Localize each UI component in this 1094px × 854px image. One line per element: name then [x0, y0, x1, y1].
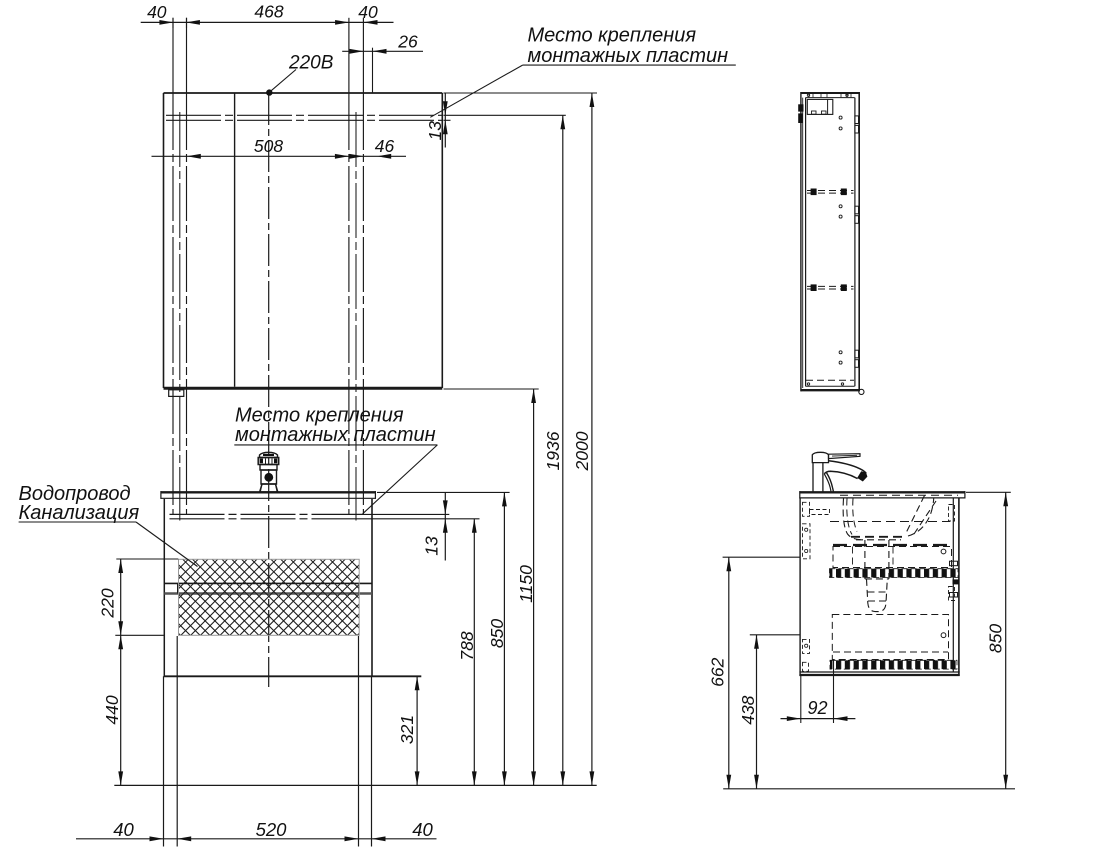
svg-text:13: 13 [422, 536, 442, 556]
svg-text:монтажных пластин: монтажных пластин [235, 424, 436, 446]
svg-text:850: 850 [985, 624, 1005, 653]
svg-text:92: 92 [807, 698, 827, 718]
svg-text:440: 440 [102, 695, 122, 724]
svg-text:438: 438 [738, 695, 758, 724]
svg-text:788: 788 [457, 631, 477, 660]
svg-text:13: 13 [425, 121, 445, 141]
svg-text:40: 40 [358, 2, 378, 22]
svg-text:40: 40 [412, 819, 433, 840]
svg-text:40: 40 [113, 819, 134, 840]
svg-text:Канализация: Канализация [19, 502, 140, 524]
svg-text:2000: 2000 [572, 431, 592, 471]
svg-text:1150: 1150 [516, 565, 536, 603]
svg-text:850: 850 [487, 619, 507, 648]
svg-text:508: 508 [254, 136, 283, 156]
svg-text:46: 46 [375, 136, 395, 156]
svg-text:662: 662 [707, 657, 727, 686]
svg-text:26: 26 [397, 31, 418, 51]
svg-text:468: 468 [254, 2, 283, 22]
svg-text:1936: 1936 [543, 431, 563, 470]
svg-text:монтажных пластин: монтажных пластин [528, 45, 729, 67]
svg-text:321: 321 [397, 715, 417, 744]
svg-text:40: 40 [147, 2, 167, 22]
svg-text:220В: 220В [288, 53, 334, 74]
svg-text:Место крепления: Место крепления [528, 25, 697, 47]
svg-text:220: 220 [98, 588, 118, 618]
svg-text:520: 520 [256, 819, 288, 840]
